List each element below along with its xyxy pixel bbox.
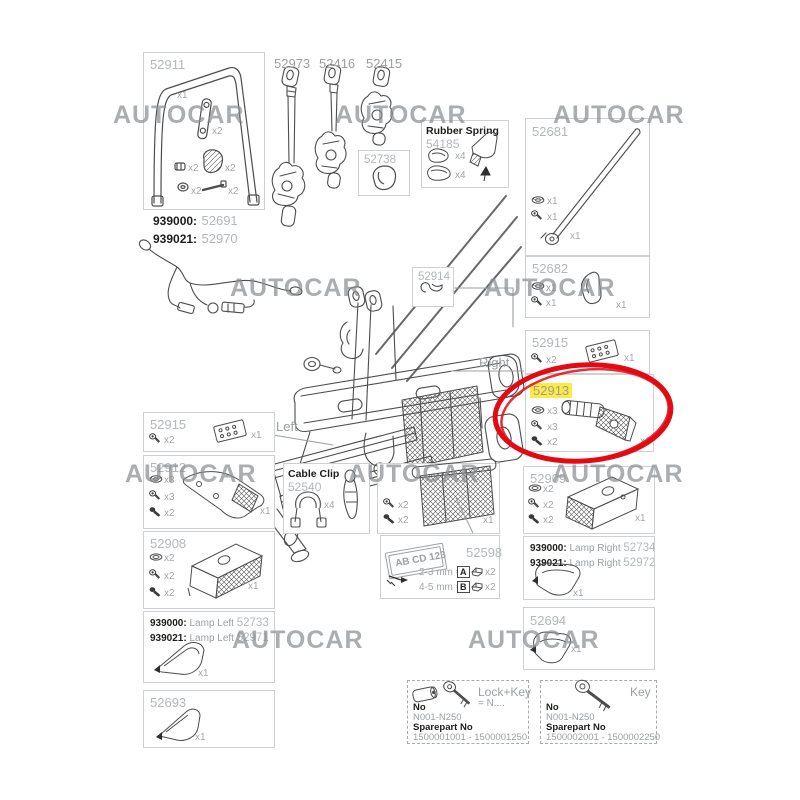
highlight-circle <box>0 0 800 800</box>
parts-diagram-page: AUTOCAR AUTOCAR AUTOCAR AUTOCAR AUTOCAR … <box>0 0 800 800</box>
